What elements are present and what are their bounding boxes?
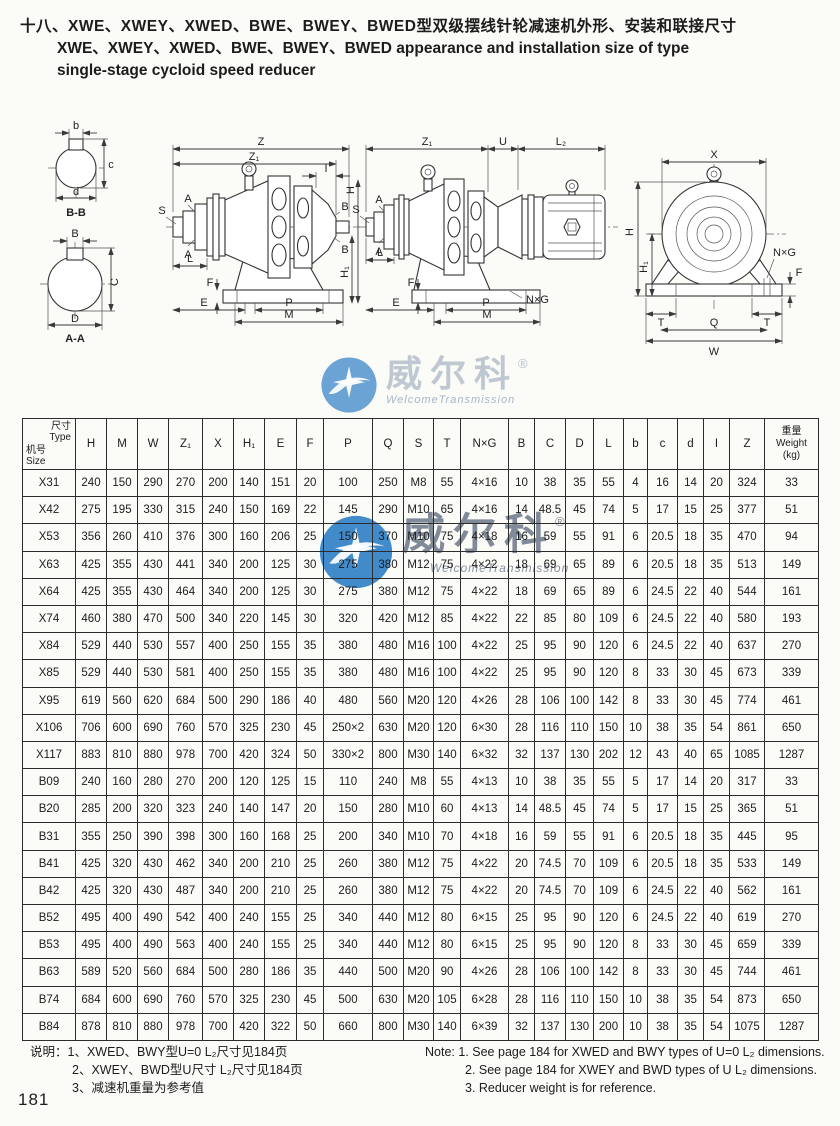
table-cell: 206 <box>265 524 297 551</box>
row-type-cell: B09 <box>23 769 76 796</box>
row-type-cell: X85 <box>23 660 76 687</box>
table-row: B5249540049054240024015525340440M12806×1… <box>23 905 819 932</box>
table-cell: 530 <box>138 660 169 687</box>
table-cell: 220 <box>234 605 265 632</box>
table-cell: 620 <box>138 687 169 714</box>
table-cell: 150 <box>324 796 373 823</box>
row-type-cell: B20 <box>23 796 76 823</box>
table-cell: 280 <box>373 796 404 823</box>
table-cell: 140 <box>234 470 265 497</box>
table-cell: 5 <box>624 497 648 524</box>
dim-label-F-motor: F <box>408 277 415 289</box>
dim-label-U: U <box>499 136 507 148</box>
column-header: c <box>648 419 678 470</box>
table-cell: 70 <box>566 877 594 904</box>
table-cell: 637 <box>730 633 765 660</box>
table-cell: 275 <box>324 551 373 578</box>
section-caption-aa: A-A <box>65 333 85 345</box>
table-cell: 320 <box>107 877 138 904</box>
row-type-cell: X31 <box>23 470 76 497</box>
dim-label-D: D <box>71 313 79 325</box>
table-cell: 240 <box>76 470 107 497</box>
table-cell: 150 <box>594 986 624 1013</box>
column-header: H <box>76 419 107 470</box>
table-cell: 280 <box>234 959 265 986</box>
table-cell: 589 <box>76 959 107 986</box>
dim-label-T-left: T <box>658 317 665 329</box>
page-number: 181 <box>18 1090 49 1110</box>
table-cell: 15 <box>297 769 324 796</box>
table-cell: 116 <box>535 986 566 1013</box>
column-header: Q <box>373 419 404 470</box>
table-cell: 30 <box>678 959 704 986</box>
table-cell: 91 <box>594 524 624 551</box>
table-cell: 6 <box>624 524 648 551</box>
table-cell: 200 <box>234 578 265 605</box>
table-cell: 80 <box>434 905 461 932</box>
table-cell: 1287 <box>765 741 819 768</box>
table-cell: 330×2 <box>324 741 373 768</box>
table-cell: 51 <box>765 796 819 823</box>
table-cell: 74.5 <box>535 877 566 904</box>
table-cell: 650 <box>765 986 819 1013</box>
table-cell: 120 <box>234 769 265 796</box>
table-cell: 440 <box>324 959 373 986</box>
table-cell: 619 <box>76 687 107 714</box>
table-cell: 6 <box>624 877 648 904</box>
table-cell: 706 <box>76 714 107 741</box>
table-cell: 398 <box>169 823 203 850</box>
table-row: B4242532043048734020021025260380M12754×2… <box>23 877 819 904</box>
dim-label-H1: H₁ <box>339 266 351 278</box>
table-cell: 377 <box>730 497 765 524</box>
table-cell: 145 <box>324 497 373 524</box>
table-cell: 16 <box>509 524 535 551</box>
table-cell: 38 <box>648 986 678 1013</box>
brand-logo-icon <box>320 356 378 414</box>
table-cell: 500 <box>203 959 234 986</box>
table-cell: M12 <box>404 905 434 932</box>
table-cell: 89 <box>594 551 624 578</box>
table-cell: 22 <box>678 905 704 932</box>
table-cell: 35 <box>704 823 730 850</box>
table-cell: 16 <box>648 470 678 497</box>
table-cell: 195 <box>107 497 138 524</box>
table-cell: 35 <box>704 850 730 877</box>
dim-label-F: F <box>207 277 214 289</box>
table-cell: 25 <box>297 877 324 904</box>
table-cell: 560 <box>138 959 169 986</box>
watermark-subtext: WelcomeTransmission <box>386 394 528 406</box>
dim-label-M: M <box>284 309 293 321</box>
table-cell: 5 <box>624 796 648 823</box>
table-cell: 155 <box>265 660 297 687</box>
table-cell: 340 <box>203 551 234 578</box>
section-mark-A-top: A <box>184 193 192 205</box>
table-cell: 210 <box>265 877 297 904</box>
table-cell: 100 <box>434 633 461 660</box>
column-header: H₁ <box>234 419 265 470</box>
table-cell: 260 <box>324 877 373 904</box>
dim-label-L: L <box>187 253 193 265</box>
table-cell: 490 <box>138 932 169 959</box>
table-cell: 18 <box>678 524 704 551</box>
table-row: X6442535543046434020012530275380M12754×2… <box>23 578 819 605</box>
table-cell: 880 <box>138 741 169 768</box>
table-cell: 14 <box>678 769 704 796</box>
table-cell: 54 <box>704 1013 730 1040</box>
table-cell: 17 <box>648 796 678 823</box>
table-cell: 700 <box>203 741 234 768</box>
dim-label-C: C <box>109 278 121 286</box>
table-cell: 75 <box>434 850 461 877</box>
table-cell: 356 <box>76 524 107 551</box>
table-cell: 410 <box>138 524 169 551</box>
dim-label-E-motor: E <box>392 297 399 309</box>
table-cell: 440 <box>107 633 138 660</box>
table-cell: 355 <box>107 578 138 605</box>
table-cell: 80 <box>566 605 594 632</box>
table-cell: 38 <box>535 470 566 497</box>
table-row: B7468460069076057032523045500630M201056×… <box>23 986 819 1013</box>
table-cell: 285 <box>76 796 107 823</box>
table-cell: 325 <box>234 714 265 741</box>
table-cell: 24.5 <box>648 877 678 904</box>
table-cell: 6×15 <box>461 905 509 932</box>
table-cell: 24.5 <box>648 633 678 660</box>
table-cell: 28 <box>509 714 535 741</box>
table-cell: 90 <box>566 932 594 959</box>
table-cell: 22 <box>678 877 704 904</box>
table-cell: 20.5 <box>648 850 678 877</box>
table-cell: 320 <box>138 796 169 823</box>
table-cell: 322 <box>265 1013 297 1040</box>
section-caption-bb: B-B <box>66 207 86 219</box>
table-cell: 12 <box>624 741 648 768</box>
dim-label-E: E <box>200 297 207 309</box>
table-cell: 280 <box>138 769 169 796</box>
table-cell: 6×15 <box>461 932 509 959</box>
table-cell: 24.5 <box>648 605 678 632</box>
table-cell: 530 <box>138 633 169 660</box>
table-cell: 420 <box>234 741 265 768</box>
table-cell: 59 <box>535 823 566 850</box>
column-header: B <box>509 419 535 470</box>
table-cell: 25 <box>704 796 730 823</box>
table-cell: 55 <box>434 470 461 497</box>
title-block: 十八、XWE、XWEY、XWED、BWE、BWEY、BWED型双级摆线针轮减速机… <box>20 16 736 82</box>
table-cell: 420 <box>234 1013 265 1040</box>
table-cell: 75 <box>434 551 461 578</box>
table-cell: 340 <box>203 578 234 605</box>
column-header: X <box>203 419 234 470</box>
table-cell: 95 <box>765 823 819 850</box>
column-header: Z₁ <box>169 419 203 470</box>
table-cell: 500 <box>203 687 234 714</box>
table-cell: 28 <box>509 959 535 986</box>
table-cell: 1075 <box>730 1013 765 1040</box>
table-row: X5335626041037630016020625150370M10754×1… <box>23 524 819 551</box>
table-cell: 25 <box>297 850 324 877</box>
table-cell: 4×22 <box>461 660 509 687</box>
table-header-row: 尺寸 Type 机号 Size HMWZ₁XH₁EFPQSTN×GBCDLbcd… <box>23 419 819 470</box>
table-cell: 425 <box>76 850 107 877</box>
table-cell: 4×22 <box>461 551 509 578</box>
table-row: X3124015029027020014015120100250M8554×16… <box>23 470 819 497</box>
table-cell: 200 <box>107 796 138 823</box>
table-cell: 10 <box>509 470 535 497</box>
table-cell: M10 <box>404 497 434 524</box>
table-cell: 35 <box>678 986 704 1013</box>
table-cell: M20 <box>404 986 434 1013</box>
table-cell: 109 <box>594 877 624 904</box>
table-cell: 400 <box>203 932 234 959</box>
notes-zh-label: 说明： <box>30 1043 68 1061</box>
table-cell: 48.5 <box>535 497 566 524</box>
table-cell: 149 <box>765 850 819 877</box>
table-cell: 65 <box>434 497 461 524</box>
table-cell: 684 <box>76 986 107 1013</box>
table-cell: 355 <box>76 823 107 850</box>
section-view-aa: B C D A-A <box>40 228 121 345</box>
table-cell: 6 <box>624 578 648 605</box>
dim-label-NxG-front: N×G <box>773 247 796 259</box>
table-cell: 250 <box>234 633 265 660</box>
table-cell: 650 <box>765 714 819 741</box>
table-cell: 25 <box>509 905 535 932</box>
table-cell: 20 <box>297 470 324 497</box>
row-type-cell: B74 <box>23 986 76 1013</box>
table-cell: 529 <box>76 633 107 660</box>
table-cell: 380 <box>373 551 404 578</box>
table-cell: M10 <box>404 823 434 850</box>
table-cell: 673 <box>730 660 765 687</box>
table-cell: 1085 <box>730 741 765 768</box>
table-cell: 48.5 <box>535 796 566 823</box>
table-cell: 470 <box>138 605 169 632</box>
column-header: S <box>404 419 434 470</box>
table-cell: 120 <box>594 660 624 687</box>
table-cell: 600 <box>107 714 138 741</box>
table-cell: 90 <box>434 959 461 986</box>
table-cell: 142 <box>594 687 624 714</box>
table-cell: 10 <box>624 986 648 1013</box>
table-cell: 45 <box>297 986 324 1013</box>
table-cell: 75 <box>434 524 461 551</box>
table-cell: 557 <box>169 633 203 660</box>
table-cell: 25 <box>509 660 535 687</box>
table-cell: 520 <box>107 959 138 986</box>
table-cell: 35 <box>704 551 730 578</box>
row-type-cell: B63 <box>23 959 76 986</box>
table-cell: 500 <box>169 605 203 632</box>
table-cell: 85 <box>535 605 566 632</box>
table-cell: 440 <box>373 932 404 959</box>
table-cell: 161 <box>765 877 819 904</box>
table-cell: 6 <box>624 551 648 578</box>
table-cell: 17 <box>648 497 678 524</box>
dim-label-P: P <box>285 297 292 309</box>
table-cell: 500 <box>324 986 373 1013</box>
dim-label-W: W <box>709 346 720 358</box>
table-cell: 355 <box>107 551 138 578</box>
dim-label-X: X <box>710 149 718 161</box>
table-cell: 40 <box>297 687 324 714</box>
table-cell: 323 <box>169 796 203 823</box>
table-cell: 75 <box>434 578 461 605</box>
table-cell: 400 <box>203 633 234 660</box>
table-cell: 275 <box>324 578 373 605</box>
table-cell: 38 <box>648 714 678 741</box>
table-cell: 774 <box>730 687 765 714</box>
catalog-page: 十八、XWE、XWEY、XWED、BWE、BWEY、BWED型双级摆线针轮减速机… <box>0 0 840 1126</box>
table-cell: 110 <box>324 769 373 796</box>
table-cell: 700 <box>203 1013 234 1040</box>
row-type-cell: B53 <box>23 932 76 959</box>
table-cell: 15 <box>678 497 704 524</box>
table-cell: 330 <box>138 497 169 524</box>
table-cell: 95 <box>535 660 566 687</box>
column-header: T <box>434 419 461 470</box>
table-cell: 4×22 <box>461 877 509 904</box>
dim-label-b: b <box>73 120 79 132</box>
table-cell: 60 <box>434 796 461 823</box>
table-cell: 4×16 <box>461 470 509 497</box>
table-cell: 480 <box>324 687 373 714</box>
table-cell: 186 <box>265 687 297 714</box>
table-cell: 109 <box>594 605 624 632</box>
table-cell: 142 <box>594 959 624 986</box>
table-cell: 4×22 <box>461 605 509 632</box>
table-cell: 200 <box>234 850 265 877</box>
table-cell: 441 <box>169 551 203 578</box>
reducer-motor-side-view: Z₁ U L₂ S A A L F E <box>352 136 618 326</box>
table-cell: 151 <box>265 470 297 497</box>
table-cell: 495 <box>76 905 107 932</box>
table-cell: M12 <box>404 850 434 877</box>
table-cell: 10 <box>624 714 648 741</box>
table-cell: 32 <box>509 1013 535 1040</box>
table-cell: 54 <box>704 714 730 741</box>
table-cell: M12 <box>404 877 434 904</box>
note-zh-3: 3、减速机重量为参考值 <box>72 1079 204 1097</box>
column-header: M <box>107 419 138 470</box>
table-cell: 35 <box>297 660 324 687</box>
table-cell: 376 <box>169 524 203 551</box>
table-cell: 380 <box>324 660 373 687</box>
table-cell: 18 <box>509 578 535 605</box>
table-cell: 116 <box>535 714 566 741</box>
table-cell: 10 <box>509 769 535 796</box>
table-cell: 230 <box>265 986 297 1013</box>
table-cell: 15 <box>678 796 704 823</box>
table-cell: 70 <box>566 850 594 877</box>
section-view-bb: b c d B-B <box>48 120 114 219</box>
table-cell: 6 <box>624 905 648 932</box>
table-cell: 4×18 <box>461 823 509 850</box>
table-cell: 32 <box>509 741 535 768</box>
table-cell: 324 <box>265 741 297 768</box>
table-cell: 240 <box>234 932 265 959</box>
table-cell: 1287 <box>765 1013 819 1040</box>
table-cell: 390 <box>138 823 169 850</box>
table-cell: 120 <box>434 687 461 714</box>
column-header: L <box>594 419 624 470</box>
table-cell: 25 <box>297 524 324 551</box>
corner-label-type-zh: 尺寸 <box>51 421 71 432</box>
table-cell: 14 <box>509 497 535 524</box>
reducer-side-view: Z Z₁ I S A A B B L <box>158 136 360 326</box>
table-cell: 45 <box>704 932 730 959</box>
table-cell: 25 <box>509 633 535 660</box>
table-cell: 880 <box>138 1013 169 1040</box>
table-cell: 544 <box>730 578 765 605</box>
table-cell: 425 <box>76 578 107 605</box>
table-cell: 320 <box>107 850 138 877</box>
table-cell: 137 <box>535 741 566 768</box>
table-cell: 25 <box>509 932 535 959</box>
table-cell: 684 <box>169 687 203 714</box>
table-cell: 300 <box>203 524 234 551</box>
table-cell: 230 <box>265 714 297 741</box>
table-cell: 45 <box>704 959 730 986</box>
section-mark-A-top-motor: A <box>375 194 383 206</box>
table-cell: 35 <box>678 1013 704 1040</box>
table-cell: 270 <box>765 905 819 932</box>
table-cell: 425 <box>76 877 107 904</box>
table-cell: 6×30 <box>461 714 509 741</box>
dim-label-H-front: H <box>624 228 636 236</box>
table-cell: 20.5 <box>648 551 678 578</box>
table-cell: M16 <box>404 633 434 660</box>
table-cell: 45 <box>566 497 594 524</box>
table-cell: 30 <box>678 932 704 959</box>
row-type-cell: B52 <box>23 905 76 932</box>
table-cell: 340 <box>324 932 373 959</box>
row-type-cell: X53 <box>23 524 76 551</box>
table-cell: 20 <box>509 850 535 877</box>
table-cell: 660 <box>324 1013 373 1040</box>
table-cell: 8 <box>624 932 648 959</box>
table-cell: 20 <box>509 877 535 904</box>
dim-label-S-motor: S <box>352 204 359 216</box>
dim-label-d: d <box>73 186 79 198</box>
table-row: X11788381088097870042032450330×2800M3014… <box>23 741 819 768</box>
table-cell: M10 <box>404 796 434 823</box>
table-cell: 380 <box>373 850 404 877</box>
table-cell: 28 <box>509 687 535 714</box>
table-cell: 40 <box>704 905 730 932</box>
table-row: X7446038047050034022014530320420M12854×2… <box>23 605 819 632</box>
table-cell: 110 <box>566 714 594 741</box>
table-cell: 109 <box>594 850 624 877</box>
table-cell: 45 <box>704 687 730 714</box>
table-cell: 370 <box>373 524 404 551</box>
table-cell: 5 <box>624 769 648 796</box>
note-zh-2: 2、XWEY、BWD型U尺寸 L₂尺寸见184页 <box>72 1061 303 1079</box>
weight-label-en: Weight <box>765 438 818 450</box>
dimension-table: 尺寸 Type 机号 Size HMWZ₁XH₁EFPQSTN×GBCDLbcd… <box>22 418 819 1041</box>
table-cell: 4×13 <box>461 769 509 796</box>
table-cell: 275 <box>76 497 107 524</box>
table-cell: 380 <box>324 633 373 660</box>
dim-label-L2: L₂ <box>556 136 566 148</box>
table-cell: 50 <box>297 741 324 768</box>
table-cell: 883 <box>76 741 107 768</box>
table-cell: 878 <box>76 1013 107 1040</box>
table-cell: 55 <box>434 769 461 796</box>
table-cell: 90 <box>566 660 594 687</box>
